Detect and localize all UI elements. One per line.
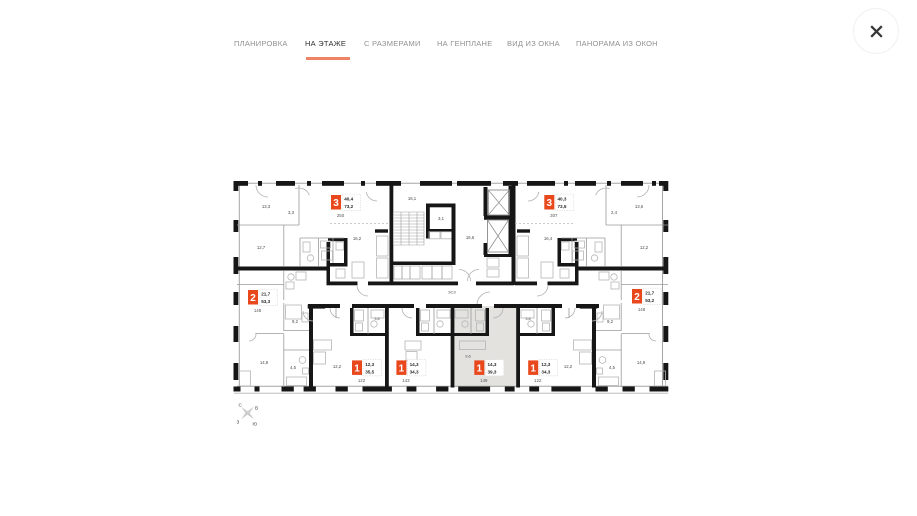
svg-text:В: В: [255, 406, 258, 411]
svg-text:9,2: 9,2: [607, 319, 614, 324]
svg-text:16,6: 16,6: [466, 235, 475, 240]
svg-text:1: 1: [477, 364, 483, 375]
svg-text:12,3: 12,3: [365, 362, 374, 367]
svg-text:149: 149: [480, 378, 488, 383]
svg-text:148: 148: [254, 308, 262, 313]
svg-text:40,3: 40,3: [558, 197, 567, 202]
svg-text:12,2: 12,2: [333, 364, 342, 369]
svg-text:14,9: 14,9: [637, 360, 646, 365]
svg-text:34,3: 34,3: [410, 370, 419, 375]
svg-text:16,2: 16,2: [353, 236, 362, 241]
svg-text:35,5: 35,5: [365, 370, 374, 375]
svg-text:250: 250: [337, 213, 345, 218]
svg-text:14,3: 14,3: [410, 362, 419, 367]
svg-text:73,2: 73,2: [344, 204, 353, 209]
svg-text:1: 1: [399, 364, 405, 375]
svg-text:13,3: 13,3: [262, 204, 271, 209]
svg-text:73,5: 73,5: [558, 204, 567, 209]
svg-text:3,1: 3,1: [438, 216, 445, 221]
svg-text:16,4: 16,4: [544, 236, 553, 241]
svg-text:12,7: 12,7: [257, 245, 266, 250]
svg-text:14,9: 14,9: [260, 360, 269, 365]
svg-text:3,8: 3,8: [525, 317, 530, 321]
svg-text:148: 148: [638, 307, 646, 312]
svg-text:1: 1: [354, 364, 360, 375]
svg-text:12,2: 12,2: [640, 245, 649, 250]
svg-text:21,7: 21,7: [645, 291, 654, 296]
svg-text:2: 2: [250, 293, 256, 304]
svg-text:143: 143: [402, 378, 410, 383]
svg-text:С: С: [239, 403, 243, 408]
svg-text:Ю: Ю: [253, 422, 258, 427]
svg-text:12,2: 12,2: [564, 364, 573, 369]
svg-text:12,3: 12,3: [541, 362, 550, 367]
svg-text:4,5: 4,5: [609, 365, 616, 370]
svg-text:307: 307: [550, 213, 558, 218]
svg-text:34,3: 34,3: [541, 370, 550, 375]
svg-text:9,6: 9,6: [465, 354, 471, 359]
svg-text:1: 1: [530, 364, 536, 375]
svg-text:122: 122: [534, 378, 542, 383]
svg-text:16,1: 16,1: [408, 196, 417, 201]
svg-text:3: 3: [333, 198, 339, 209]
svg-text:3,8: 3,8: [374, 317, 379, 321]
svg-text:З: З: [237, 420, 240, 425]
svg-text:40,4: 40,4: [344, 197, 353, 202]
svg-text:9,2: 9,2: [292, 319, 299, 324]
svg-text:14,3: 14,3: [488, 362, 497, 367]
svg-text:3: 3: [547, 198, 553, 209]
svg-text:122: 122: [358, 378, 366, 383]
svg-text:39,3: 39,3: [488, 370, 497, 375]
svg-text:13,6: 13,6: [635, 204, 644, 209]
svg-text:4,5: 4,5: [290, 365, 297, 370]
svg-text:ЗСЗ: ЗСЗ: [448, 290, 456, 295]
svg-text:53,3: 53,3: [261, 299, 270, 304]
svg-text:3,3: 3,3: [288, 210, 295, 215]
svg-text:21,7: 21,7: [261, 292, 270, 297]
svg-text:2,4: 2,4: [611, 210, 618, 215]
svg-text:53,2: 53,2: [645, 298, 654, 303]
svg-text:2: 2: [634, 292, 640, 303]
